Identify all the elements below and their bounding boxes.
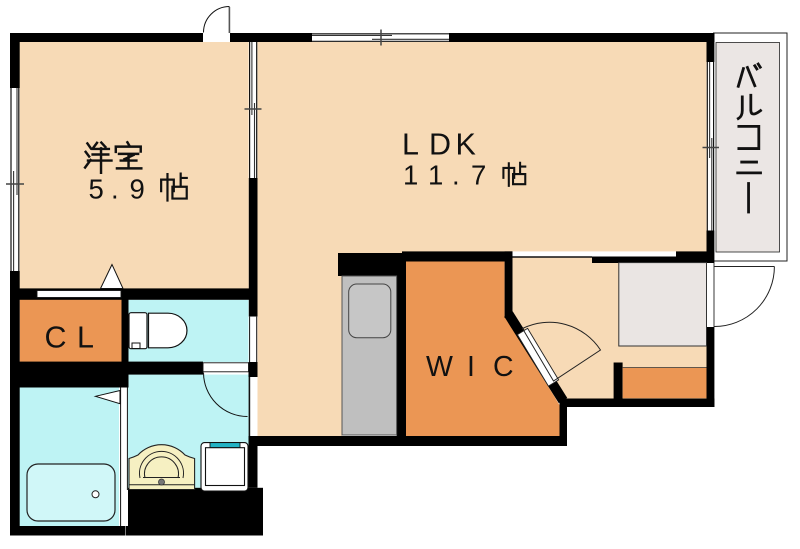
svg-text:.: . xyxy=(452,160,460,191)
svg-text:1: 1 xyxy=(428,160,443,191)
svg-text:I: I xyxy=(467,351,475,383)
svg-text:K: K xyxy=(456,127,476,161)
svg-text:D: D xyxy=(429,127,451,161)
svg-text:1: 1 xyxy=(403,160,418,191)
svg-text:.: . xyxy=(111,173,119,204)
svg-text:L: L xyxy=(402,127,419,161)
svg-text:W: W xyxy=(426,351,453,383)
svg-text:5: 5 xyxy=(89,173,104,204)
svg-text:C: C xyxy=(493,351,514,383)
svg-text:C: C xyxy=(45,320,67,354)
svg-text:L: L xyxy=(77,320,94,354)
svg-text:7: 7 xyxy=(471,160,486,191)
svg-text:9: 9 xyxy=(130,173,145,204)
